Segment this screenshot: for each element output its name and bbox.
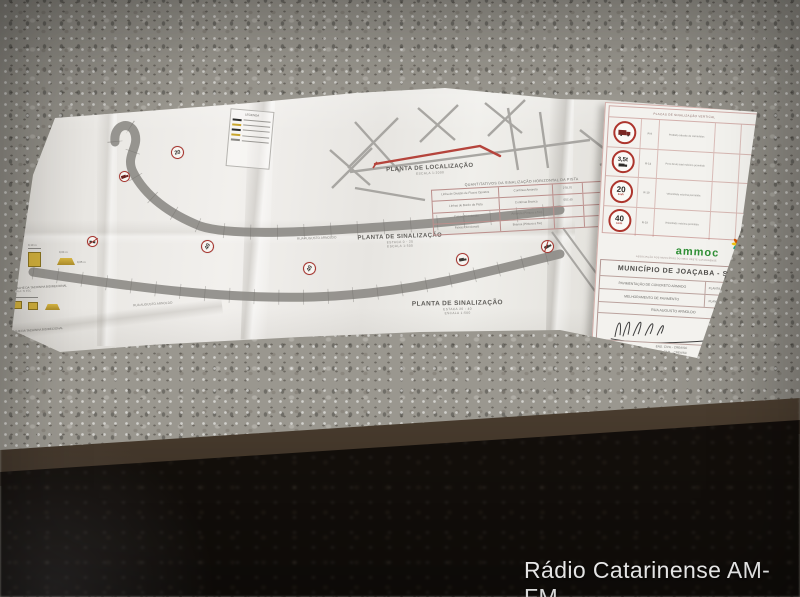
defocus-haze <box>0 0 800 597</box>
photo-of-plan-on-granite-counter: 20 40 40 <box>0 0 800 597</box>
station-watermark: Rádio Catarinense AM-FM <box>524 557 800 597</box>
